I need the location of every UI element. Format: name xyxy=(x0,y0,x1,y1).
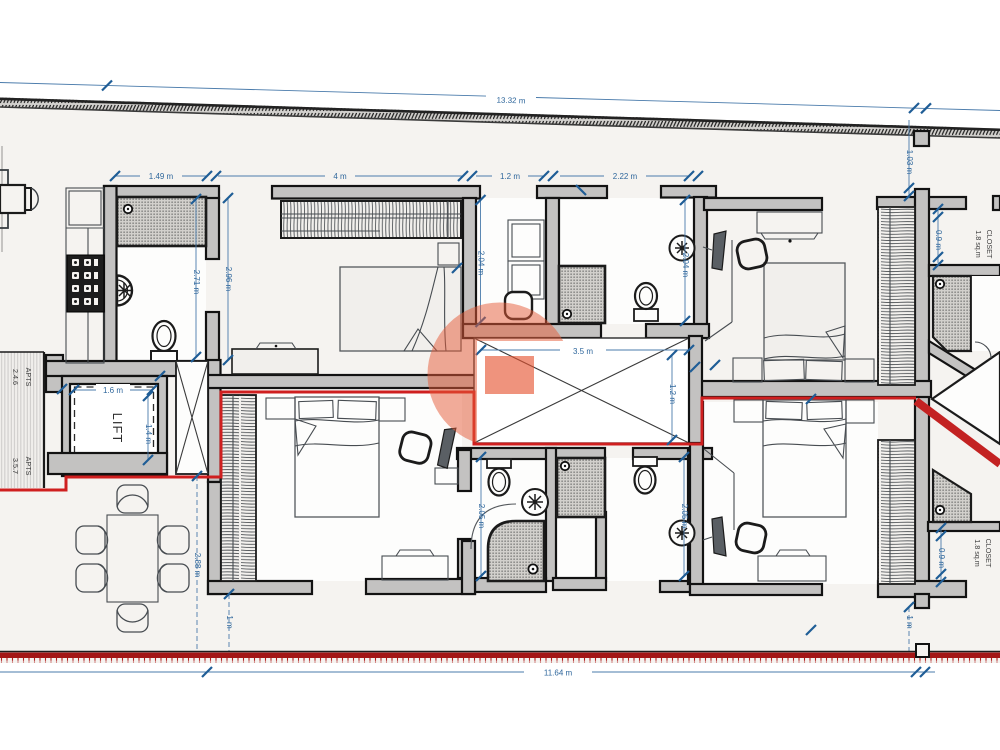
svg-text:CLOSET: CLOSET xyxy=(985,230,994,259)
svg-text:1 m: 1 m xyxy=(905,615,914,629)
svg-text:4 m: 4 m xyxy=(333,172,347,181)
svg-text:3.5 m: 3.5 m xyxy=(573,347,593,356)
svg-text:1.2 m: 1.2 m xyxy=(668,384,677,404)
svg-text:CLOSET: CLOSET xyxy=(984,539,993,568)
svg-text:1.49 m: 1.49 m xyxy=(149,172,174,181)
svg-text:APTS: APTS xyxy=(24,457,33,476)
svg-text:1.2 m: 1.2 m xyxy=(500,172,520,181)
svg-text:11.64 m: 11.64 m xyxy=(544,669,573,678)
svg-text:1 m: 1 m xyxy=(225,615,234,629)
svg-text:APTS: APTS xyxy=(24,368,33,387)
svg-text:LIFT: LIFT xyxy=(110,413,125,444)
svg-text:2.88 m: 2.88 m xyxy=(193,553,202,578)
svg-text:3.5.7: 3.5.7 xyxy=(11,458,20,474)
svg-text:1.03 m: 1.03 m xyxy=(905,150,914,175)
svg-text:2.71 m: 2.71 m xyxy=(192,270,201,295)
svg-text:2.4.6: 2.4.6 xyxy=(11,369,20,385)
svg-text:1.4 m: 1.4 m xyxy=(144,424,153,444)
svg-text:2.04 m: 2.04 m xyxy=(477,251,486,276)
svg-text:1.8 sq.m: 1.8 sq.m xyxy=(974,230,983,258)
svg-text:2.05 m: 2.05 m xyxy=(680,504,689,529)
svg-text:2.22 m: 2.22 m xyxy=(613,172,638,181)
svg-text:0.9 m: 0.9 m xyxy=(934,230,943,250)
svg-text:1.6 m: 1.6 m xyxy=(103,386,123,395)
svg-text:2.96 m: 2.96 m xyxy=(224,267,233,292)
svg-text:0.9 m: 0.9 m xyxy=(937,548,946,568)
svg-text:2.05 m: 2.05 m xyxy=(477,504,486,529)
svg-text:13.32 m: 13.32 m xyxy=(496,96,525,106)
svg-text:2.04 m: 2.04 m xyxy=(681,253,690,278)
svg-text:1.8 sq.m: 1.8 sq.m xyxy=(973,539,982,567)
